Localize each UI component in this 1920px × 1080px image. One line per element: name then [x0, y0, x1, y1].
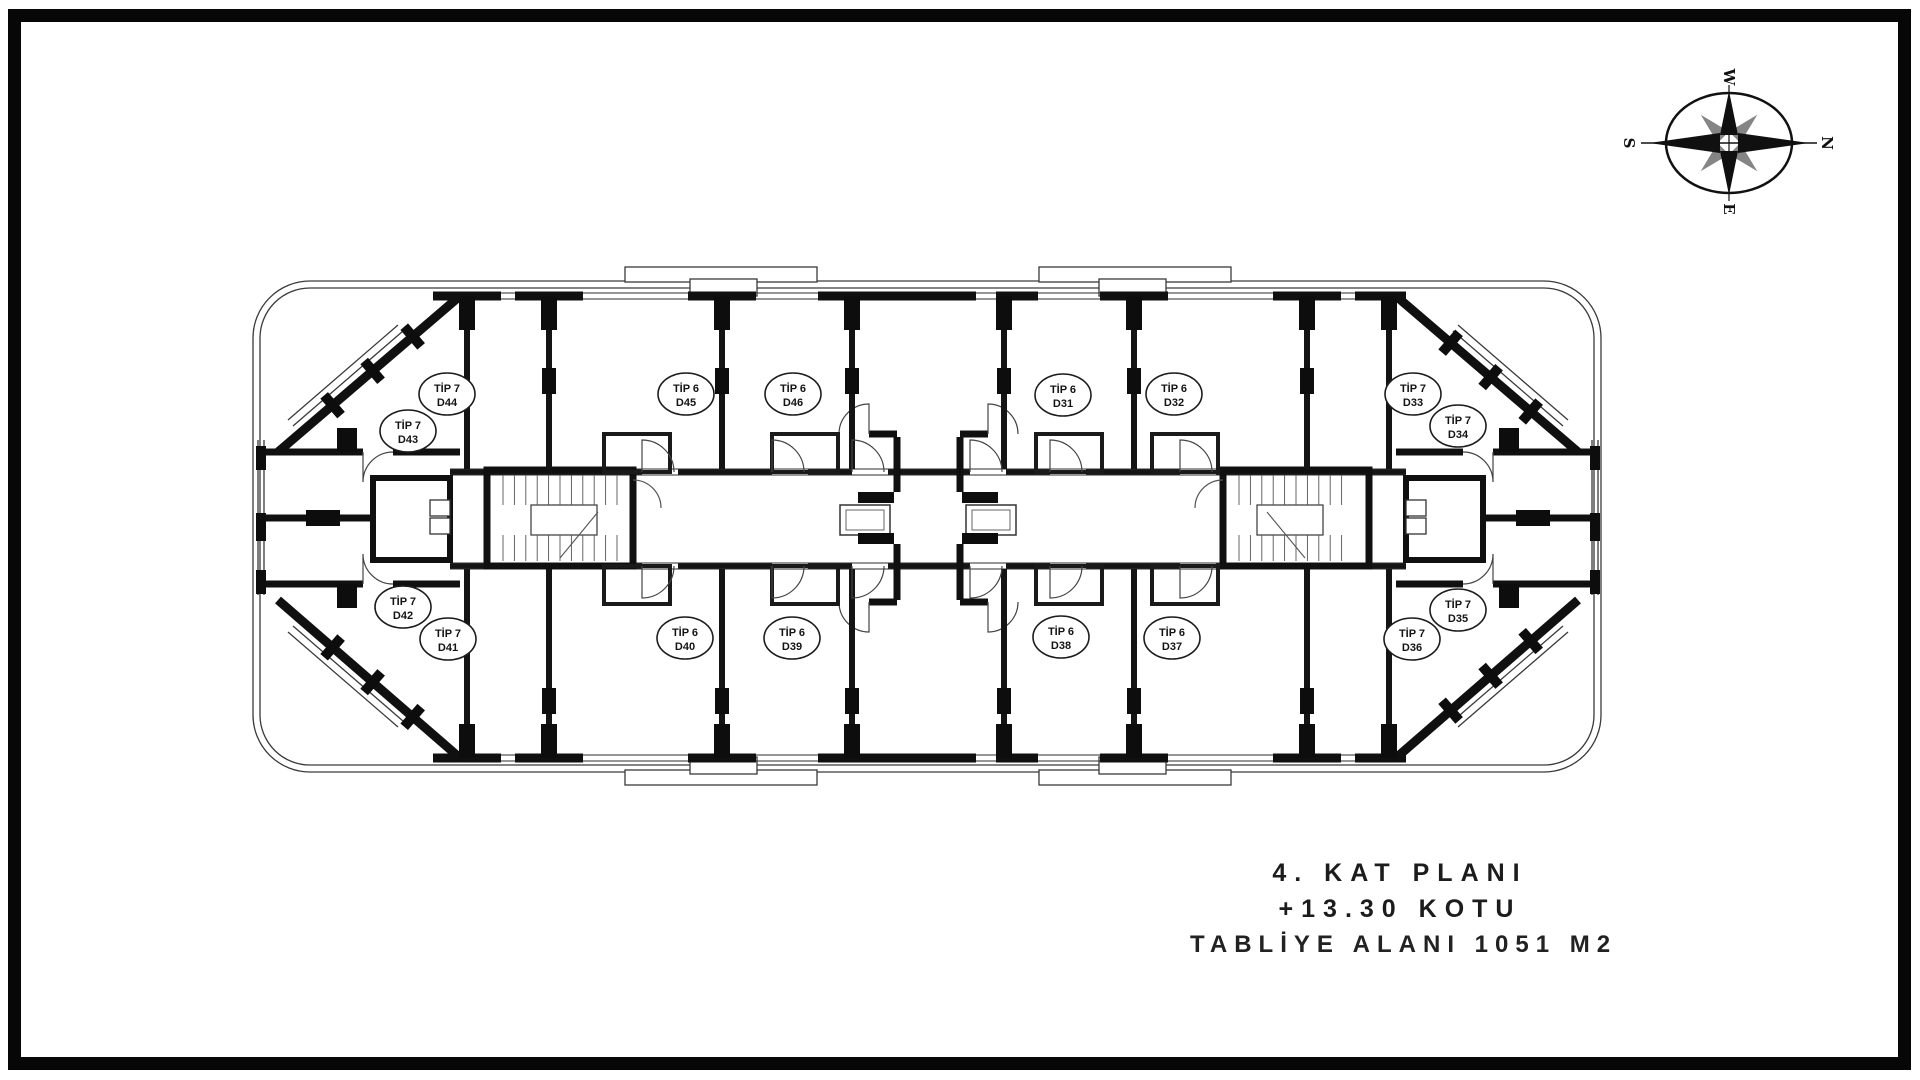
structural-columns	[256, 296, 1600, 758]
unit-type-text: TİP 7	[434, 382, 460, 395]
title-block: 4. KAT PLANI +13.30 KOTU TABLİYE ALANI 1…	[1190, 855, 1610, 963]
perimeter-walls	[262, 296, 1594, 758]
unit-label-D39: TİP 6D39	[764, 617, 820, 659]
unit-type-text: TİP 7	[390, 595, 416, 608]
unit-number-text: D40	[675, 641, 695, 653]
unit-type-text: TİP 7	[435, 627, 461, 640]
unit-label-D46: TİP 6D46	[765, 373, 821, 415]
compass-letter-east: E	[1720, 203, 1738, 214]
corridor-walls	[450, 472, 1406, 566]
unit-label-D42: TİP 7D42	[375, 586, 431, 628]
floor-title: 4. KAT PLANI	[1190, 855, 1610, 891]
unit-number-text: D31	[1053, 398, 1073, 410]
unit-number-text: D42	[393, 610, 413, 622]
unit-number-text: D46	[783, 397, 803, 409]
unit-number-text: D38	[1051, 640, 1071, 652]
unit-label-D37: TİP 6D37	[1144, 617, 1200, 659]
elevator-right	[966, 505, 1016, 535]
elevator-left	[840, 505, 890, 535]
unit-label-D32: TİP 6D32	[1146, 373, 1202, 415]
floor-plan-canvas: TİP 7D44TİP 7D43TİP 6D45TİP 6D46TİP 6D31…	[0, 0, 1920, 1080]
unit-label-D44: TİP 7D44	[419, 373, 475, 415]
unit-number-text: D37	[1162, 641, 1182, 653]
unit-label-D40: TİP 6D40	[657, 617, 713, 659]
unit-type-text: TİP 7	[1399, 627, 1425, 640]
unit-label-D41: TİP 7D41	[420, 618, 476, 660]
unit-label-D35: TİP 7D35	[1430, 589, 1486, 631]
elevator-lobby	[839, 404, 1018, 632]
unit-number-text: D36	[1402, 642, 1422, 654]
unit-number-text: D32	[1164, 397, 1184, 409]
end-railing-lines	[258, 440, 1598, 595]
corner-railing-lines	[288, 325, 1568, 727]
door-arcs	[642, 440, 1212, 598]
unit-type-text: TİP 7	[1445, 414, 1471, 427]
unit-label-D33: TİP 7D33	[1385, 373, 1441, 415]
unit-type-text: TİP 6	[1050, 383, 1076, 396]
elevation-title: +13.30 KOTU	[1190, 891, 1610, 927]
compass-letter-west: W	[1720, 68, 1738, 87]
lobby-door-arcs	[839, 404, 1018, 632]
unit-number-text: D35	[1448, 613, 1468, 625]
interior-room-boxes	[604, 434, 1218, 604]
unit-label-D34: TİP 7D34	[1430, 405, 1486, 447]
unit-label-D31: TİP 6D31	[1035, 374, 1091, 416]
unit-type-text: TİP 6	[672, 626, 698, 639]
unit-type-text: TİP 6	[780, 382, 806, 395]
unit-type-text: TİP 7	[395, 419, 421, 432]
unit-partition-walls	[467, 300, 1389, 755]
unit-label-D43: TİP 7D43	[380, 410, 436, 452]
unit-type-text: TİP 6	[1161, 382, 1187, 395]
stair-treads	[503, 475, 1342, 561]
unit-label-D45: TİP 6D45	[658, 373, 714, 415]
unit-label-D38: TİP 6D38	[1033, 616, 1089, 658]
unit-number-text: D33	[1403, 397, 1423, 409]
window-lines	[450, 293, 1406, 761]
compass-rose: N S E W	[1620, 68, 1836, 215]
unit-number-text: D43	[398, 434, 418, 446]
slab-area-title: TABLİYE ALANI 1051 M2	[1190, 927, 1610, 963]
unit-type-text: TİP 6	[1159, 626, 1185, 639]
unit-number-text: D39	[782, 641, 802, 653]
unit-number-text: D41	[438, 642, 458, 654]
floor-plan: TİP 7D44TİP 7D43TİP 6D45TİP 6D46TİP 6D31…	[253, 267, 1601, 785]
unit-type-text: TİP 6	[673, 382, 699, 395]
unit-type-text: TİP 7	[1400, 382, 1426, 395]
stair-core-left	[487, 470, 1369, 566]
unit-number-text: D45	[676, 397, 696, 409]
compass-letter-south: S	[1620, 138, 1638, 149]
unit-number-text: D34	[1448, 429, 1469, 441]
terrace-boundary	[253, 267, 1601, 785]
unit-number-text: D44	[437, 397, 458, 409]
unit-type-text: TİP 6	[779, 626, 805, 639]
unit-type-text: TİP 6	[1048, 625, 1074, 638]
corner-chamfer-walls	[278, 296, 1578, 758]
unit-label-D36: TİP 7D36	[1384, 618, 1440, 660]
unit-labels: TİP 7D44TİP 7D43TİP 6D45TİP 6D46TİP 6D31…	[375, 373, 1486, 660]
unit-type-text: TİP 7	[1445, 598, 1471, 611]
compass-letter-north: N	[1818, 136, 1836, 150]
